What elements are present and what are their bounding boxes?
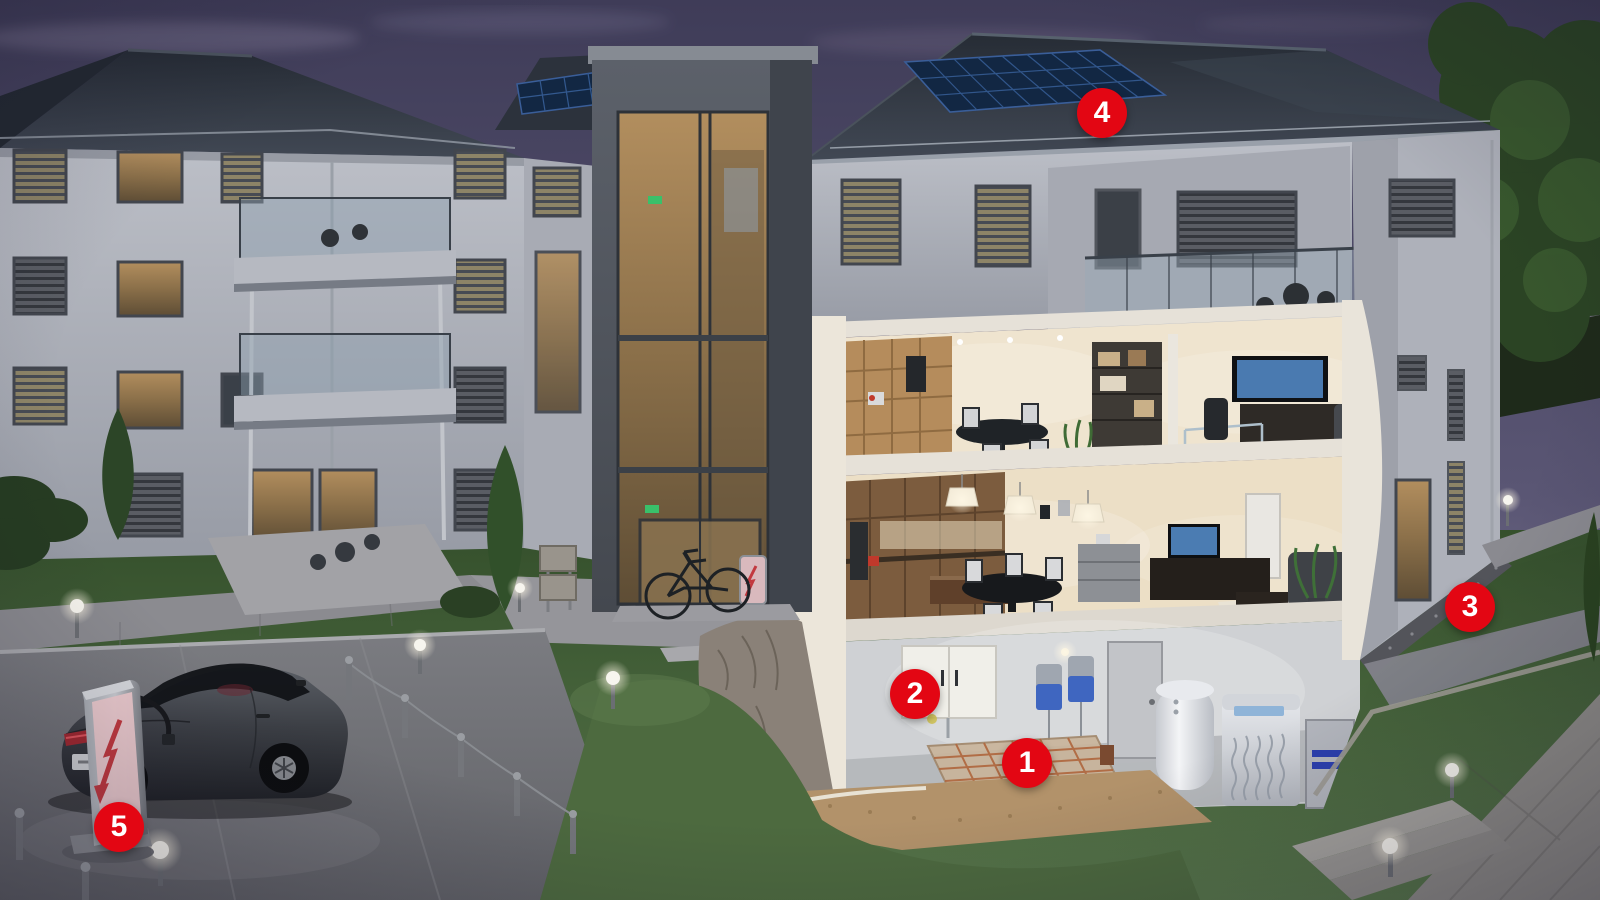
vignette — [0, 0, 1600, 900]
marker-4[interactable]: 4 — [1077, 88, 1127, 138]
scene-illustration — [0, 0, 1600, 900]
marker-3[interactable]: 3 — [1445, 582, 1495, 632]
building-energy-cutaway-scene: 1 2 3 4 5 — [0, 0, 1600, 900]
marker-5[interactable]: 5 — [94, 802, 144, 852]
marker-1[interactable]: 1 — [1002, 738, 1052, 788]
marker-2[interactable]: 2 — [890, 669, 940, 719]
